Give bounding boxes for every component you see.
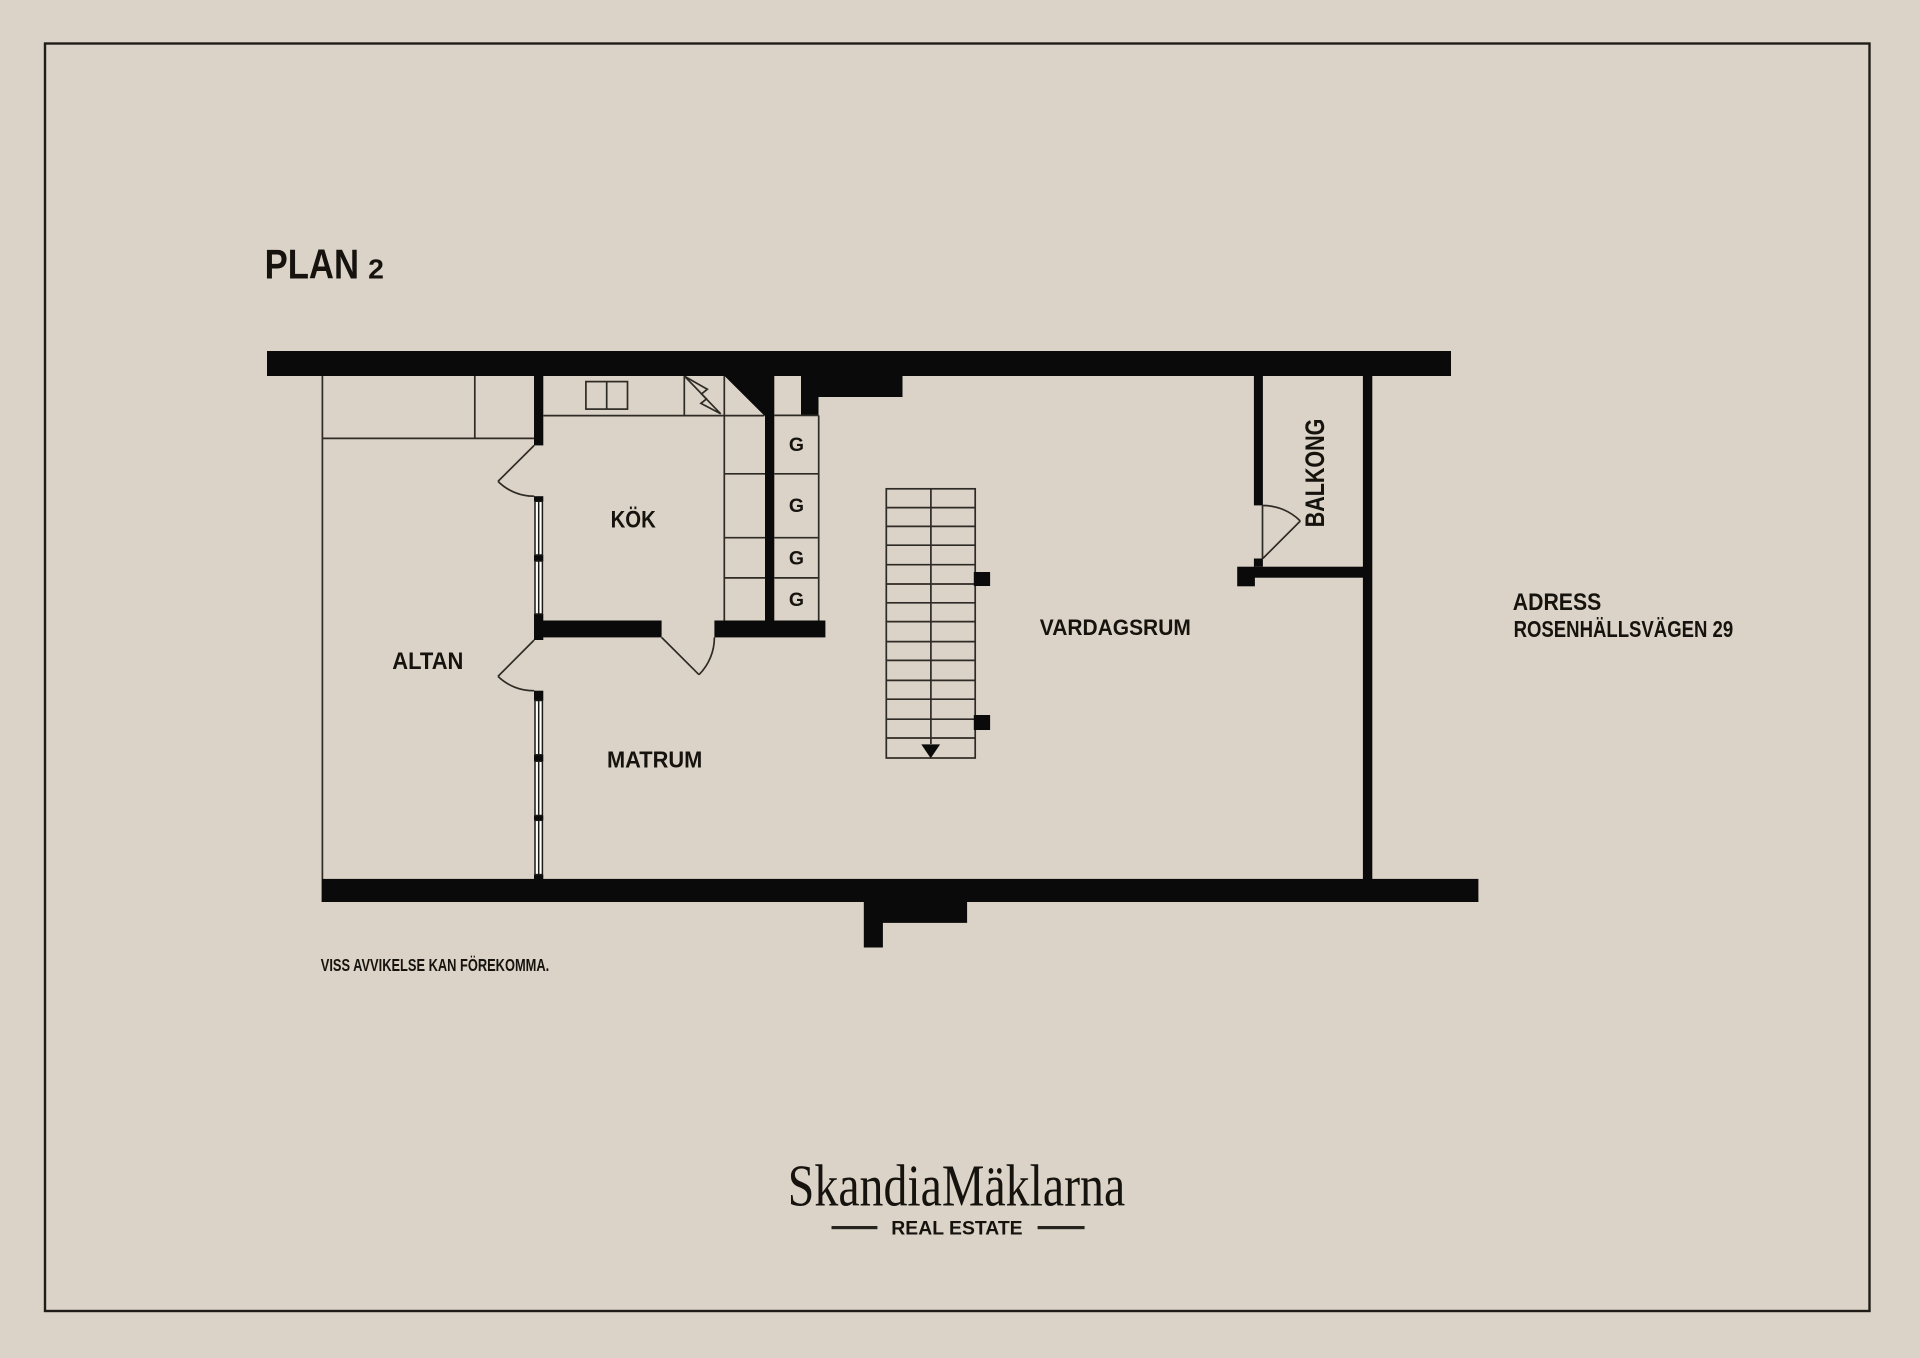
svg-text:G: G (789, 495, 804, 517)
svg-text:SkandiaMäklarna: SkandiaMäklarna (788, 1153, 1125, 1219)
svg-text:MATRUM: MATRUM (607, 747, 702, 773)
svg-text:ADRESS: ADRESS (1513, 589, 1602, 616)
svg-text:2: 2 (368, 253, 384, 284)
svg-text:KÖK: KÖK (611, 507, 657, 534)
svg-text:VISS AVVIKELSE KAN FÖREKOMMA.: VISS AVVIKELSE KAN FÖREKOMMA. (321, 955, 549, 975)
svg-text:ROSENHÄLLSVÄGEN 29: ROSENHÄLLSVÄGEN 29 (1514, 616, 1734, 642)
svg-text:BALKONG: BALKONG (1300, 419, 1330, 528)
svg-text:G: G (789, 589, 804, 611)
svg-text:VARDAGSRUM: VARDAGSRUM (1040, 615, 1191, 640)
svg-text:G: G (789, 434, 804, 456)
svg-text:PLAN: PLAN (265, 240, 359, 287)
svg-text:G: G (789, 548, 804, 570)
svg-text:REAL ESTATE: REAL ESTATE (891, 1217, 1022, 1239)
svg-text:ALTAN: ALTAN (392, 648, 463, 675)
